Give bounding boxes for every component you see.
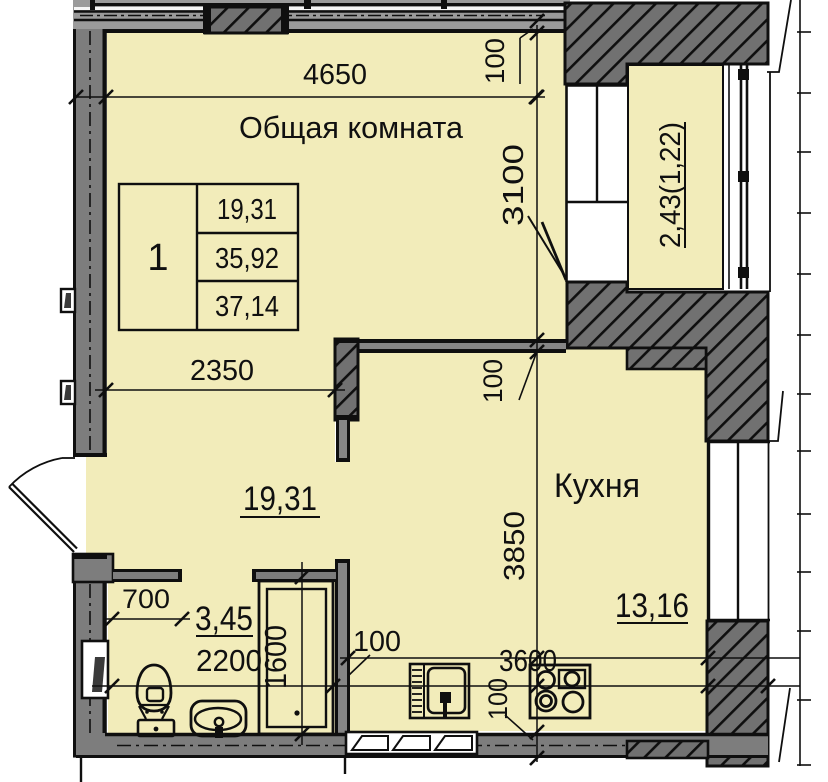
svg-text:100: 100 <box>478 359 508 403</box>
svg-text:100: 100 <box>480 38 510 84</box>
svg-text:Кухня: Кухня <box>554 467 640 505</box>
svg-text:2200: 2200 <box>196 643 262 678</box>
svg-text:100: 100 <box>483 678 513 720</box>
svg-text:700: 700 <box>122 584 170 614</box>
svg-text:3100: 3100 <box>498 144 530 226</box>
svg-text:35,92: 35,92 <box>215 243 279 275</box>
svg-text:100: 100 <box>353 626 401 658</box>
svg-text:13,16: 13,16 <box>615 587 689 625</box>
svg-text:19,31: 19,31 <box>243 480 317 518</box>
svg-text:19,31: 19,31 <box>217 194 277 226</box>
svg-text:1: 1 <box>147 237 168 279</box>
svg-text:1600: 1600 <box>258 625 293 689</box>
svg-text:37,14: 37,14 <box>215 291 279 323</box>
svg-text:4650: 4650 <box>303 59 367 91</box>
svg-text:Общая комната: Общая комната <box>239 110 464 145</box>
svg-text:3,45: 3,45 <box>195 600 253 638</box>
svg-text:3600: 3600 <box>499 643 557 678</box>
svg-text:2350: 2350 <box>190 355 254 387</box>
svg-text:2,43(1,22): 2,43(1,22) <box>655 122 687 248</box>
svg-text:3850: 3850 <box>499 511 531 581</box>
